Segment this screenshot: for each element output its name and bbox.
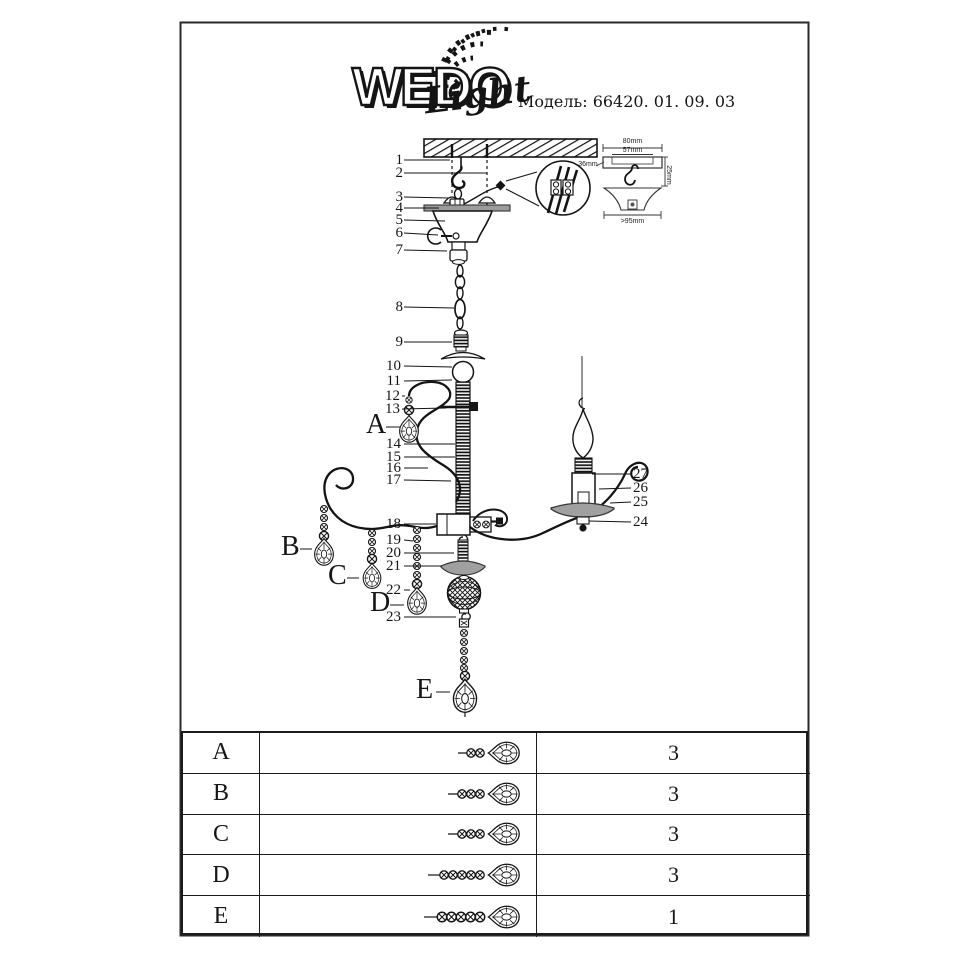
pendant-b xyxy=(315,506,334,566)
callout-17: 17 xyxy=(385,472,401,488)
bobeche-plate xyxy=(441,561,485,575)
table-row-d-qty: 3 xyxy=(537,855,810,896)
pendant-a-drawing xyxy=(392,734,524,772)
callout-6: 6 xyxy=(387,225,403,241)
letter-d: D xyxy=(370,589,390,617)
crystal-ball xyxy=(448,576,481,610)
finial-parts xyxy=(460,609,471,627)
callout-26: 26 xyxy=(633,480,653,496)
callout-24: 24 xyxy=(633,514,653,530)
inset-dim-holes: 57mm xyxy=(605,147,660,154)
table-row-d-item: D xyxy=(183,855,260,896)
table-row-e-qty: 1 xyxy=(537,896,810,937)
model-number-label: Модель: 66420. 01. 09. 03 xyxy=(518,92,735,111)
pendant-c xyxy=(363,530,381,589)
table-row-a-picture xyxy=(260,733,537,774)
table-row-b-picture xyxy=(260,774,537,815)
parts-table: A 3 B 3 C 3 D xyxy=(181,731,808,935)
upper-dish xyxy=(441,353,485,360)
callout-7: 7 xyxy=(387,242,403,258)
candle-bulb xyxy=(573,409,593,458)
pendant-b-drawing xyxy=(392,775,524,813)
table-row-c-item: C xyxy=(183,815,260,856)
table-row-b-item: B xyxy=(183,774,260,815)
bulb-base xyxy=(575,458,592,473)
pendant-e xyxy=(453,630,476,718)
wire-bead xyxy=(496,181,506,191)
callout-25: 25 xyxy=(633,494,653,510)
inset-dim-width: 80mm xyxy=(605,138,660,145)
table-row-c-picture xyxy=(260,815,537,856)
callout-13: 13 xyxy=(384,401,400,417)
callout-27: 27 xyxy=(633,466,653,482)
callout-18: 18 xyxy=(385,516,401,532)
pendant-a xyxy=(400,397,419,442)
chain-link-8 xyxy=(455,300,465,319)
table-row-d-picture xyxy=(260,855,537,896)
lower-left-arm xyxy=(324,468,437,529)
letter-c: C xyxy=(328,562,347,590)
table-row-c-qty: 3 xyxy=(537,815,810,856)
letter-e: E xyxy=(416,676,433,704)
mounting-dimensions-inset xyxy=(596,144,668,219)
callout-2: 2 xyxy=(387,165,403,181)
ceiling-hook xyxy=(452,166,464,188)
wing-screw xyxy=(428,228,441,244)
table-row-e-item: E xyxy=(183,896,260,937)
sphere-10 xyxy=(453,362,474,383)
table-row-a-item: A xyxy=(183,733,260,774)
pendant-e-drawing xyxy=(392,898,524,936)
callout-9: 9 xyxy=(387,334,403,350)
ceiling-slab xyxy=(424,139,597,157)
assembly-instruction-page: WEDO Light Модель: 66420. 01. 09. 03 1 2… xyxy=(0,0,970,970)
candle-bobeche xyxy=(551,503,614,517)
pendant-d-drawing xyxy=(392,856,524,894)
center-column xyxy=(456,382,470,514)
callout-10: 10 xyxy=(385,358,401,374)
pendant-c-drawing xyxy=(392,815,524,853)
callout-11: 11 xyxy=(385,373,401,389)
center-hub xyxy=(437,514,503,544)
inset-dim-canopy: >95mm xyxy=(605,218,660,225)
pendant-d xyxy=(408,527,427,615)
threaded-connector xyxy=(454,330,468,351)
inset-dim-height: 25mm xyxy=(665,164,672,186)
suspension-chain xyxy=(455,265,465,329)
candle-socket xyxy=(551,356,614,532)
callout-8: 8 xyxy=(387,299,403,315)
inset-canopy xyxy=(604,188,661,210)
hook-link xyxy=(455,189,462,199)
table-row-e-picture xyxy=(260,896,537,937)
table-row-a-qty: 3 xyxy=(537,733,810,774)
callout-21: 21 xyxy=(385,558,401,574)
letter-b: B xyxy=(281,533,300,561)
table-row-b-qty: 3 xyxy=(537,774,810,815)
letter-a: A xyxy=(366,411,386,439)
upper-scroll-arm xyxy=(409,382,460,502)
inset-dim-screw: 36mm xyxy=(578,161,598,168)
